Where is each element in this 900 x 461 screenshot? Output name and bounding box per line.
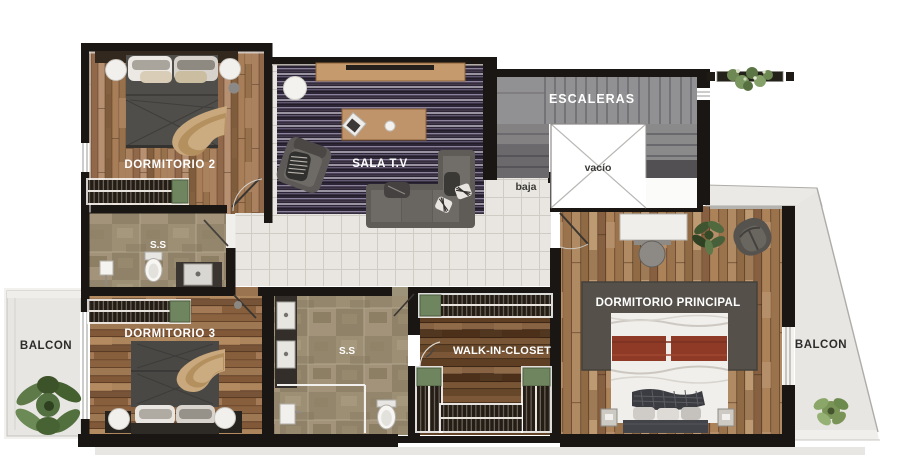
svg-text:baja: baja — [515, 181, 536, 193]
svg-text:S.S: S.S — [339, 346, 355, 357]
svg-text:BALCON: BALCON — [795, 339, 847, 351]
svg-text:DORMITORIO 3: DORMITORIO 3 — [124, 328, 215, 340]
svg-text:vacío: vacío — [585, 162, 612, 174]
svg-text:WALK-IN-CLOSET: WALK-IN-CLOSET — [453, 345, 551, 357]
svg-text:DORMITORIO PRINCIPAL: DORMITORIO PRINCIPAL — [596, 297, 741, 309]
svg-text:DORMITORIO 2: DORMITORIO 2 — [124, 159, 215, 171]
svg-text:BALCON: BALCON — [20, 340, 72, 352]
svg-text:ESCALERAS: ESCALERAS — [549, 92, 635, 106]
svg-text:SALA T.V: SALA T.V — [352, 158, 408, 170]
svg-text:S.S: S.S — [150, 240, 166, 251]
